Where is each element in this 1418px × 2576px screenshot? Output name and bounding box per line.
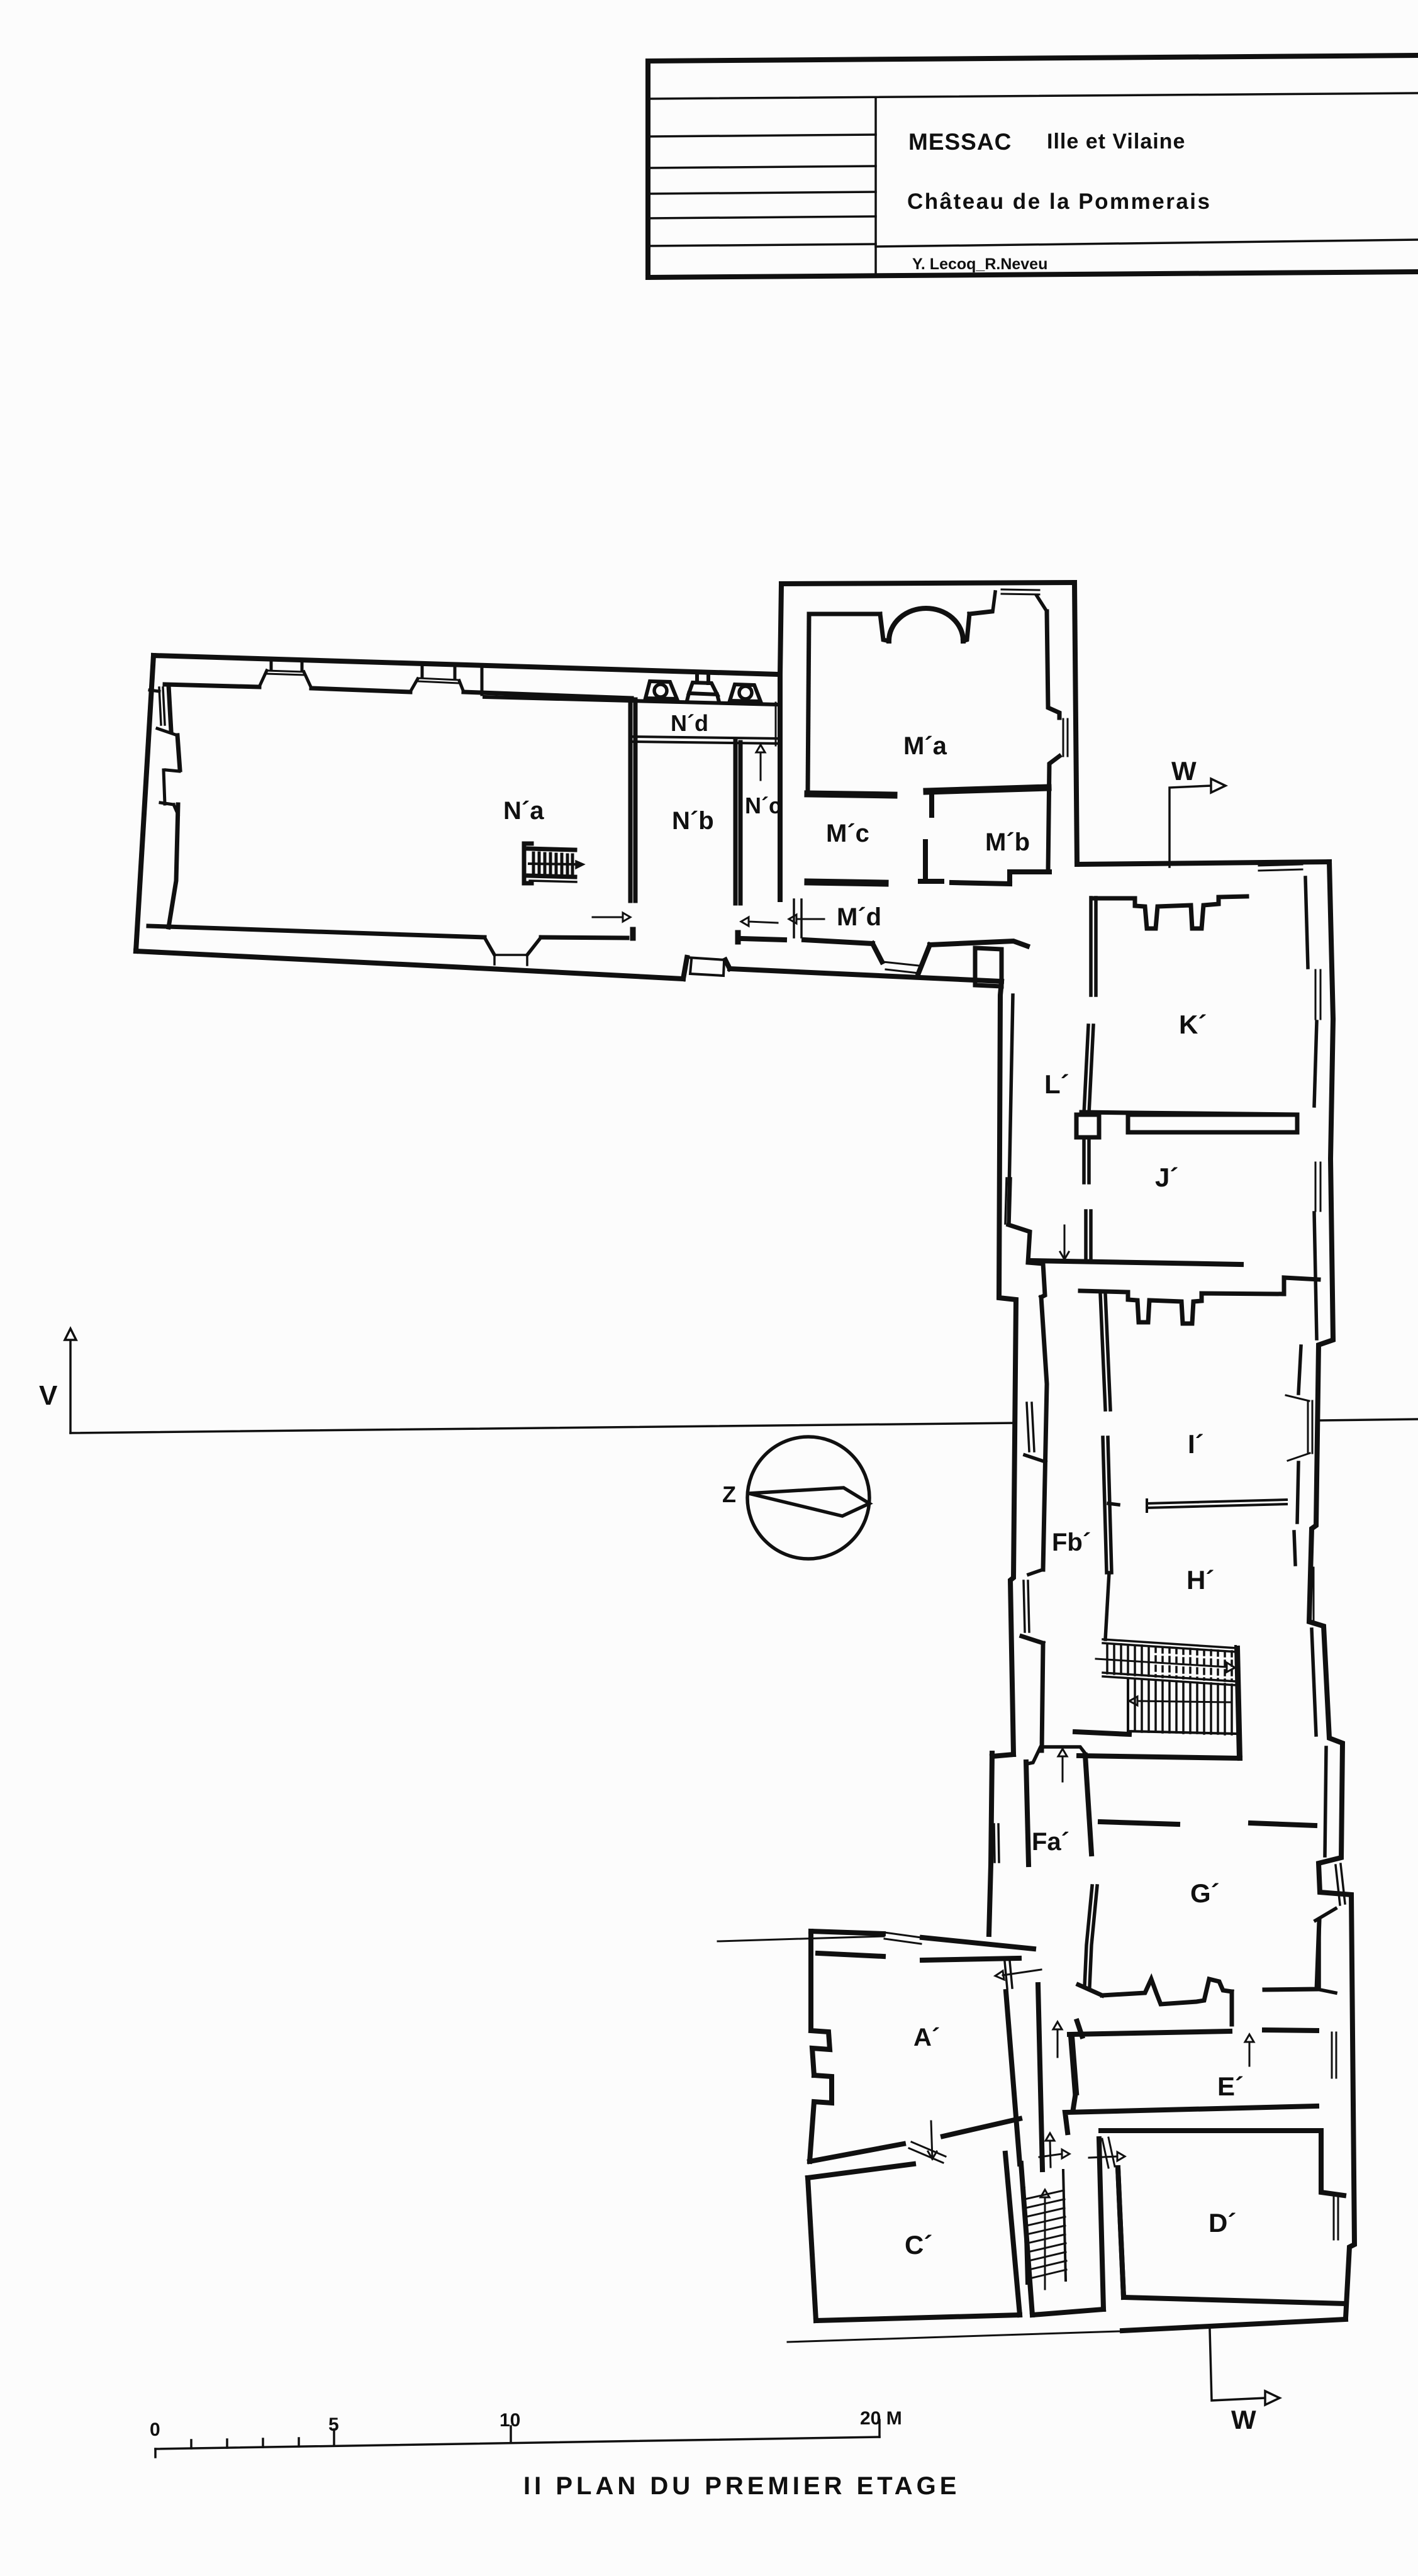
- svg-text:10: 10: [500, 2410, 520, 2431]
- svg-text:M´c: M´c: [826, 820, 869, 847]
- svg-text:Z: Z: [722, 1481, 736, 1507]
- svg-text:Château de la Pommerais: Château de la Pommerais: [907, 189, 1212, 214]
- svg-text:M´d: M´d: [837, 903, 881, 931]
- svg-text:L´: L´: [1044, 1069, 1069, 1099]
- svg-text:A´: A´: [913, 2024, 940, 2051]
- svg-text:W: W: [1171, 756, 1197, 786]
- svg-text:N´b: N´b: [672, 807, 714, 835]
- svg-text:N´c: N´c: [745, 793, 781, 818]
- svg-text:C´: C´: [905, 2230, 932, 2260]
- svg-text:Fb´: Fb´: [1052, 1529, 1091, 1556]
- svg-text:K´: K´: [1179, 1010, 1207, 1039]
- svg-text:V: V: [39, 1380, 58, 1411]
- svg-text:E´: E´: [1217, 2071, 1244, 2101]
- svg-text:0: 0: [150, 2419, 160, 2440]
- svg-text:Y. Lecoq_R.Neveu: Y. Lecoq_R.Neveu: [912, 255, 1047, 273]
- svg-text:I´: I´: [1188, 1429, 1204, 1459]
- svg-text:J´: J´: [1155, 1163, 1178, 1192]
- svg-text:N´d: N´d: [671, 710, 708, 736]
- svg-text:20 M: 20 M: [860, 2408, 902, 2429]
- svg-text:Ille et Vilaine: Ille et Vilaine: [1047, 130, 1185, 153]
- svg-text:MESSAC: MESSAC: [908, 129, 1012, 155]
- svg-text:D´: D´: [1209, 2208, 1236, 2238]
- svg-text:M´b: M´b: [985, 828, 1030, 856]
- svg-text:H´: H´: [1186, 1565, 1214, 1595]
- svg-text:5: 5: [328, 2414, 339, 2435]
- svg-text:M´a: M´a: [903, 732, 947, 760]
- svg-text:II PLAN DU PREMIER ETAGE: II PLAN DU PREMIER ETAGE: [523, 2472, 960, 2500]
- svg-text:N´a: N´a: [503, 797, 544, 825]
- svg-text:Fa´: Fa´: [1032, 1828, 1069, 1856]
- svg-text:W: W: [1231, 2405, 1256, 2434]
- svg-text:G´: G´: [1190, 1878, 1220, 1908]
